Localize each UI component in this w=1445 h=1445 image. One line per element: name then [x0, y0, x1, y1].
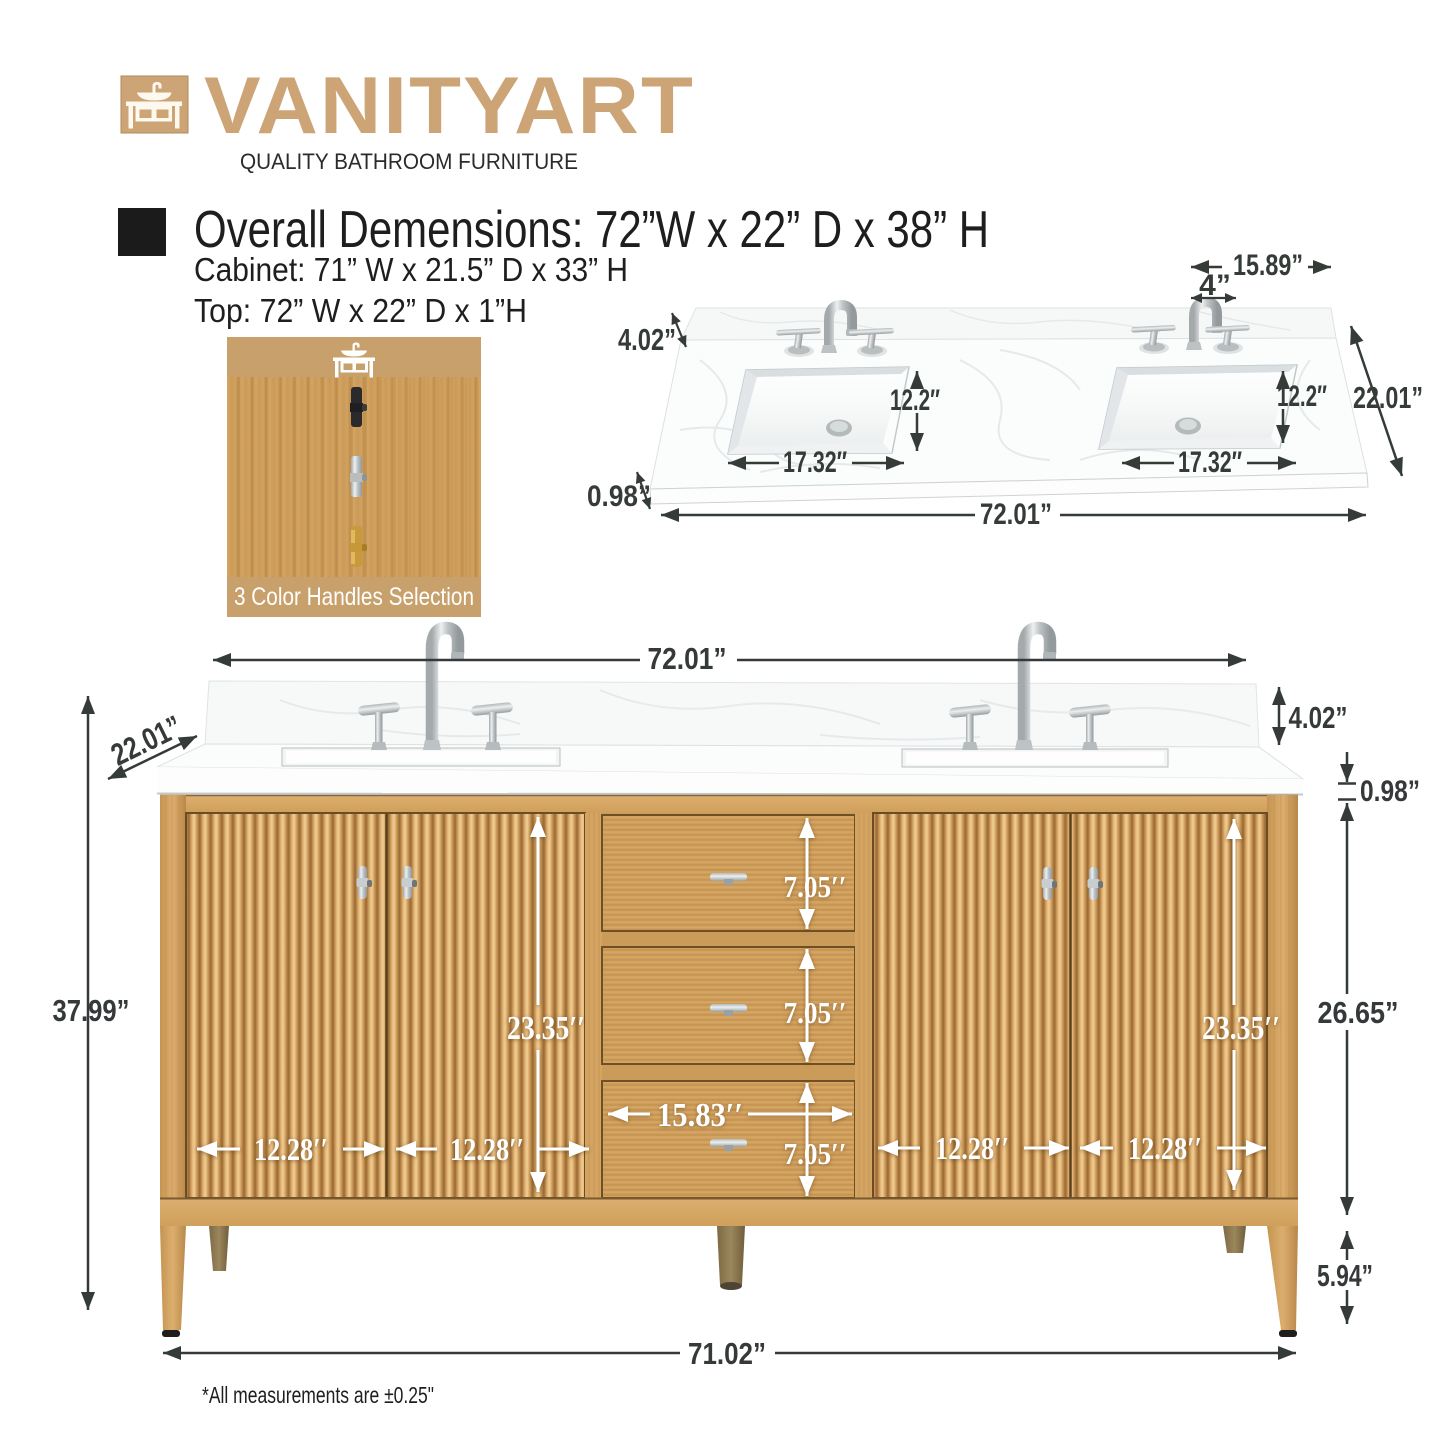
- svg-text:72.01”: 72.01”: [648, 641, 727, 676]
- svg-text:37.99”: 37.99”: [53, 993, 130, 1028]
- svg-text:Top: 72” W x 22” D x 1”H: Top: 72” W x 22” D x 1”H: [194, 292, 527, 329]
- svg-text:4.02”: 4.02”: [618, 322, 676, 357]
- svg-text:Cabinet: 71” W x 21.5” D x 33”: Cabinet: 71” W x 21.5” D x 33” H: [194, 251, 628, 288]
- svg-text:4.02”: 4.02”: [1289, 700, 1348, 735]
- svg-text:15.83′′: 15.83′′: [657, 1097, 743, 1134]
- svg-text:72.01”: 72.01”: [980, 498, 1052, 531]
- svg-text:71.02”: 71.02”: [688, 1336, 766, 1371]
- svg-text:15.89”: 15.89”: [1233, 249, 1303, 282]
- svg-text:12.2′′: 12.2′′: [890, 384, 940, 417]
- svg-text:0.98”: 0.98”: [1360, 775, 1420, 808]
- svg-text:*All measurements are ±0.25": *All measurements are ±0.25": [202, 1382, 434, 1408]
- svg-text:12.28′′: 12.28′′: [935, 1130, 1009, 1166]
- svg-text:23.35′′: 23.35′′: [1202, 1010, 1280, 1047]
- svg-text:7.05′′: 7.05′′: [784, 869, 847, 904]
- svg-text:12.28′′: 12.28′′: [254, 1131, 328, 1167]
- svg-text:22.01”: 22.01”: [1353, 380, 1423, 415]
- svg-text:17.32′′: 17.32′′: [783, 446, 847, 479]
- svg-text:3 Color Handles Selection: 3 Color Handles Selection: [234, 583, 474, 611]
- svg-text:12.2′′: 12.2′′: [1277, 380, 1327, 413]
- svg-text:7.05′′: 7.05′′: [784, 1136, 847, 1171]
- svg-text:12.28′′: 12.28′′: [1128, 1130, 1202, 1166]
- svg-text:0.98”: 0.98”: [587, 480, 651, 513]
- svg-text:VANITYART: VANITYART: [204, 61, 695, 151]
- svg-text:17.32′′: 17.32′′: [1178, 446, 1242, 479]
- svg-text:7.05′′: 7.05′′: [784, 995, 847, 1030]
- svg-text:12.28′′: 12.28′′: [450, 1131, 524, 1167]
- svg-text:23.35′′: 23.35′′: [507, 1010, 585, 1047]
- svg-text:5.94”: 5.94”: [1317, 1258, 1373, 1293]
- svg-text:4”: 4”: [1199, 269, 1231, 302]
- svg-text:QUALITY BATHROOM FURNITURE: QUALITY BATHROOM FURNITURE: [240, 149, 578, 174]
- svg-text:26.65”: 26.65”: [1318, 995, 1399, 1030]
